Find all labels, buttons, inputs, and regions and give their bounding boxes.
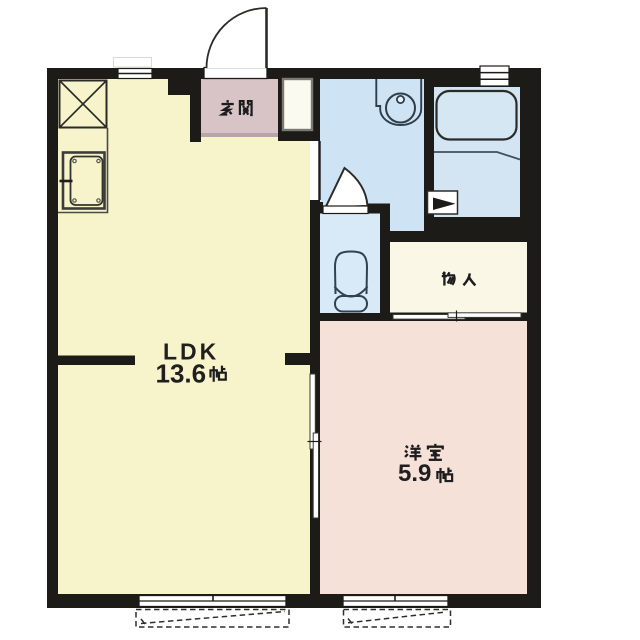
svg-text:5.9: 5.9 (398, 460, 431, 487)
svg-text:13.6: 13.6 (156, 359, 207, 389)
